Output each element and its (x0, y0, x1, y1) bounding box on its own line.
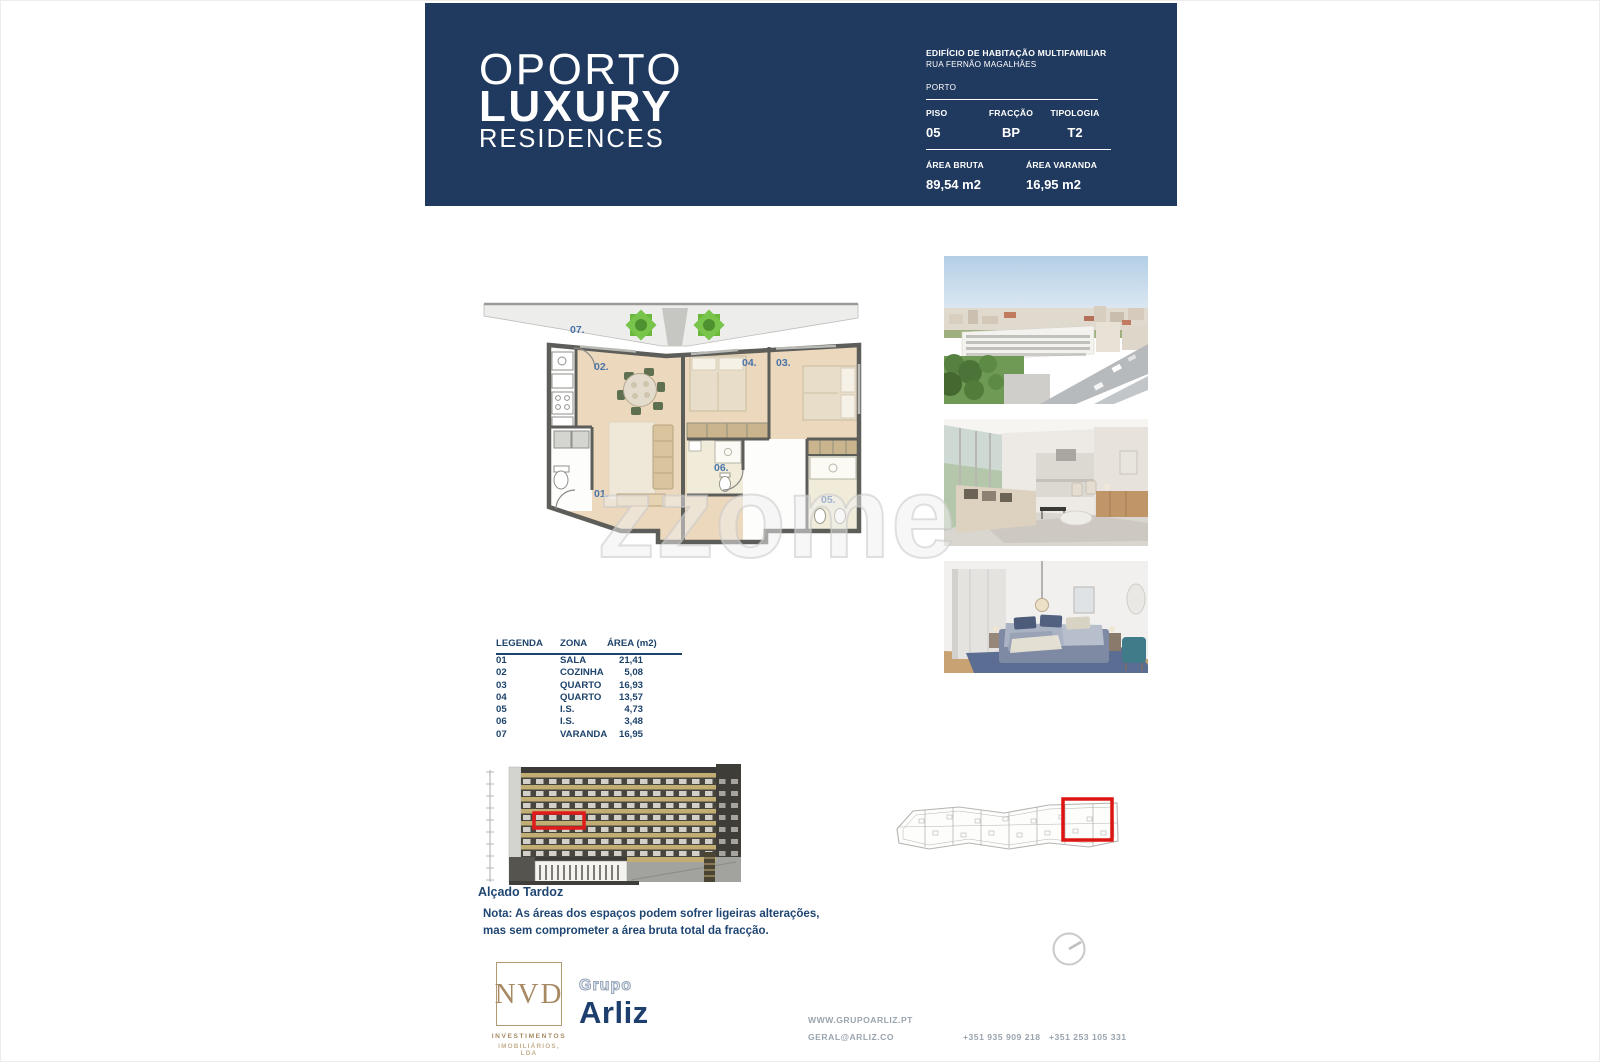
room-label-07: 07. (570, 324, 585, 336)
arliz-logo: Grupo Arliz (579, 978, 649, 1028)
legend-zone: VARANDA (560, 729, 607, 741)
header-divider-1 (926, 99, 1098, 100)
legend-zone: QUARTO (560, 692, 607, 704)
area-varanda-label: ÁREA VARANDA (1026, 160, 1111, 170)
floor-plan: 01. 02. 03. 04. 05. 06. 07. (476, 294, 871, 549)
piso-value: 05 (926, 125, 978, 140)
tipologia-value: T2 (1044, 125, 1106, 140)
legend-area: 5,08 (607, 667, 643, 679)
nvd-sub-1: INVESTIMENTOS (489, 1033, 569, 1040)
street: RUA FERNÃO MAGALHÃES (926, 60, 1112, 69)
photo-aerial-view (944, 256, 1148, 404)
unit-fields: PISO 05 FRACÇÃO BP TIPOLOGIA T2 (926, 108, 1106, 140)
building-title: EDIFÍCIO DE HABITAÇÃO MULTIFAMILIAR (926, 48, 1112, 58)
legend-zone: QUARTO (560, 680, 607, 692)
legend-code: 04 (496, 692, 560, 704)
legend-area: 21,41 (607, 655, 643, 667)
fraccao-label: FRACÇÃO (978, 108, 1044, 118)
bed (690, 356, 746, 411)
brand-logo: OPORTO LUXURY RESIDENCES (479, 51, 683, 154)
key-plan (889, 789, 1125, 875)
area-varanda-value: 16,95 m2 (1026, 177, 1111, 192)
header-divider-2 (926, 149, 1111, 150)
watermark-clock-icon (1051, 930, 1089, 968)
legend-row: 07 VARANDA 16,95 (496, 729, 682, 741)
legend-zone: SALA (560, 655, 607, 667)
legend-code: 02 (496, 667, 560, 679)
plant-icon (693, 309, 724, 340)
room-label-03: 03. (776, 357, 791, 369)
photo-bedroom (944, 561, 1148, 673)
legend-row: 04 QUARTO 13,57 (496, 692, 682, 704)
legend-area: 16,93 (607, 680, 643, 692)
arliz-name-text: Arliz (579, 997, 649, 1028)
legend-area: 16,95 (607, 729, 643, 741)
legend-row: 03 QUARTO 16,93 (496, 680, 682, 692)
area-bruta-label: ÁREA BRUTA (926, 160, 1026, 170)
legend-table: LEGENDA ZONA ÁREA (m2) 01 SALA 21,41 02 … (496, 638, 682, 741)
area-fields: ÁREA BRUTA 89,54 m2 ÁREA VARANDA 16,95 m… (926, 160, 1111, 192)
city: PORTO (926, 83, 1112, 92)
nota-line-1: Nota: As áreas dos espaços podem sofrer … (483, 906, 819, 923)
footer-phone-1: +351 935 909 218 (963, 1032, 1041, 1042)
legend-zone: I.S. (560, 716, 607, 728)
header-info: EDIFÍCIO DE HABITAÇÃO MULTIFAMILIAR RUA … (926, 48, 1112, 192)
piso-label: PISO (926, 108, 978, 118)
legend-row: 06 I.S. 3,48 (496, 716, 682, 728)
arliz-group-text: Grupo (579, 978, 649, 994)
legend-row: 01 SALA 21,41 (496, 655, 682, 667)
legend-code: 07 (496, 729, 560, 741)
legend-row: 02 COZINHA 5,08 (496, 667, 682, 679)
nvd-sub-2: IMOBILIÁRIOS, LDA (489, 1043, 569, 1057)
area-bruta-value: 89,54 m2 (926, 177, 1026, 192)
footer-email: GERAL@ARLIZ.CO (808, 1032, 894, 1042)
nota-line-2: mas sem comprometer a área bruta total d… (483, 923, 819, 940)
legend-zone: I.S. (560, 704, 607, 716)
elevation-caption: Alçado Tardoz (478, 885, 563, 899)
legend-row: 05 I.S. 4,73 (496, 704, 682, 716)
legend-area: 4,73 (607, 704, 643, 716)
room-label-01: 01. (594, 488, 609, 500)
nvd-logo-box: NVD (496, 962, 562, 1026)
plant-icon (625, 309, 656, 340)
legend-zone: COZINHA (560, 667, 607, 679)
building-elevation (476, 756, 746, 888)
footer-phone-2: +351 253 105 331 (1049, 1032, 1127, 1042)
legend-header-zona: ZONA (560, 638, 607, 649)
legend-code: 06 (496, 716, 560, 728)
legend-header-legenda: LEGENDA (496, 638, 560, 649)
fraccao-value: BP (978, 125, 1044, 140)
brand-line-3: RESIDENCES (479, 125, 683, 154)
nvd-logo-text: NVD (495, 978, 564, 1011)
nvd-logo: NVD INVESTIMENTOS IMOBILIÁRIOS, LDA (489, 962, 569, 1057)
balcony (484, 304, 858, 346)
room-label-05: 05. (821, 494, 836, 506)
legend-code: 03 (496, 680, 560, 692)
room-label-02: 02. (594, 361, 609, 373)
nota-text: Nota: As áreas dos espaços podem sofrer … (483, 906, 819, 940)
room-label-04: 04. (742, 357, 757, 369)
legend-code: 01 (496, 655, 560, 667)
legend-header-area: ÁREA (m2) (607, 638, 657, 649)
photo-living-room (944, 419, 1148, 546)
tipologia-label: TIPOLOGIA (1044, 108, 1106, 118)
legend-code: 05 (496, 704, 560, 716)
room-label-06: 06. (714, 462, 729, 474)
legend-area: 3,48 (607, 716, 643, 728)
legend-area: 13,57 (607, 692, 643, 704)
footer-website: WWW.GRUPOARLIZ.PT (808, 1015, 913, 1025)
legend-header-row: LEGENDA ZONA ÁREA (m2) (496, 638, 682, 655)
brand-line-2: LUXURY (479, 88, 683, 125)
bed (803, 366, 857, 420)
